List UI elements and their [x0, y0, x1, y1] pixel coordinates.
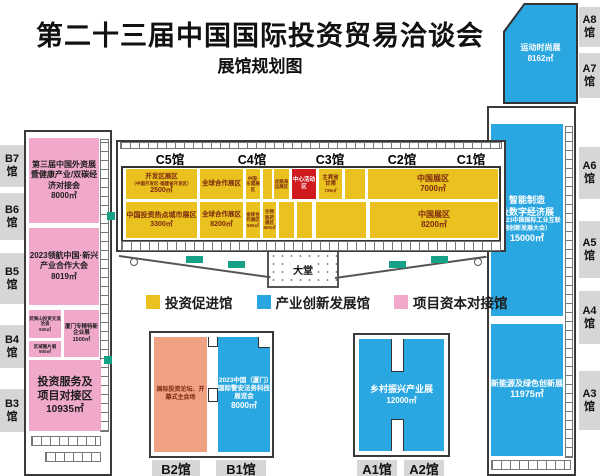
legend-item-invest: 投资促进馆 — [146, 292, 233, 312]
zone-kaifaqu-name: 开发区展区 — [145, 173, 178, 181]
zone-small-booth — [297, 202, 312, 238]
page-title: 第二十三届中国国际投资贸易洽谈会 — [0, 14, 520, 53]
building-notch — [208, 388, 218, 402]
zone-guest-area: 726㎡ — [324, 188, 336, 193]
zone-service-name1: 投资服务及 — [38, 375, 93, 389]
zone-invest-service: 投资服务及 项目对接区 10935㎡ — [29, 360, 101, 431]
hall-label-a2: A2馆 — [404, 460, 444, 476]
zone-green-energy: 新能源及绿色创新展 11975㎡ — [491, 324, 563, 456]
entrance-marker — [186, 256, 203, 263]
hall-label-a1: A1馆 — [357, 460, 397, 476]
hall-label-a8: A8馆 — [579, 7, 600, 47]
zone-global1-name: 全球合作展区 — [202, 180, 241, 188]
hall-label-b4: B4馆 — [0, 325, 24, 368]
zone-guest-province: 主宾省 甘肃 726㎡ — [319, 169, 342, 199]
zone-bio-area: 500㎡ — [263, 225, 275, 230]
zone-small-booth — [345, 169, 365, 199]
sports-hall-building: 运动时尚展 8162㎡ — [503, 3, 578, 104]
zone-rural-area: 12000㎡ — [386, 396, 416, 406]
zone-pilot-area: 8019㎡ — [51, 272, 77, 282]
entrance-marker — [104, 356, 112, 364]
zone-sme-name: 厦门专精特新企业展 — [64, 324, 99, 337]
hall-label-a5: A5馆 — [579, 221, 600, 278]
legend-label: 产业创新发展馆 — [276, 292, 371, 312]
booth-strip — [491, 460, 571, 470]
building-notch — [258, 337, 270, 348]
booth-strip — [120, 142, 502, 149]
zone-china2-name: 中国展区 — [418, 210, 450, 220]
column-marker — [474, 258, 482, 266]
hall-label-a6: A6馆 — [579, 147, 600, 199]
zone-hotcity: 中国投资热点城市展区 3300㎡ — [126, 202, 197, 238]
entrance-wall-right — [335, 256, 487, 279]
legend-item-capital: 项目资本对接馆 — [394, 292, 508, 312]
zone-center-stage: 中心活动区 — [292, 169, 316, 199]
entrance-marker — [431, 256, 448, 263]
lobby: 大堂 — [267, 252, 339, 288]
zone-smart-area: 15000㎡ — [510, 233, 544, 245]
zone-pilot-name: 2023领航中国·新兴产业合作大会 — [29, 251, 99, 272]
entrance-marker — [389, 261, 406, 268]
column-marker — [130, 258, 138, 266]
zone-smart-name2: 及数字经济展 — [500, 207, 554, 219]
zone-photo-exhibit: 区域图片展 500㎡ — [29, 341, 61, 357]
hall-label-c1: C1馆 — [440, 149, 502, 165]
hall-label-c2: C2馆 — [366, 149, 438, 165]
zone-service-name2: 项目对接区 — [38, 389, 93, 403]
legend-item-industry: 产业创新发展馆 — [257, 292, 371, 312]
legend-swatch-pink — [394, 295, 408, 309]
zone-sports: 运动时尚展 8162㎡ — [505, 5, 576, 102]
zone-kaifaqu-area: 2500㎡ — [150, 186, 173, 195]
zone-china-7000: 中国展区 7000㎡ — [368, 169, 498, 199]
hall-label-b6: B6馆 — [0, 193, 24, 240]
zone-global2-area: 8200㎡ — [210, 220, 233, 229]
zone-forum-name: 国际投资论坛、开幕式主会场 — [154, 387, 207, 402]
lobby-label: 大堂 — [291, 262, 315, 277]
zone-foreign-invest-expo: 第三届中国外资展暨健康产业/双碳经济对接会 8000㎡ — [29, 138, 99, 223]
zone-asean: 中国·东盟展区 — [246, 169, 260, 199]
legend-label: 项目资本对接馆 — [413, 292, 508, 312]
hall-label-b7: B7馆 — [0, 145, 24, 187]
zone-silk-road: 丝路海运展区 — [274, 169, 289, 199]
zone-foreign-invest-name: 第三届中国外资展暨健康产业/双碳经济对接会 — [29, 160, 99, 191]
hall-label-b3: B3馆 — [0, 389, 24, 432]
hall-label-b5: B5馆 — [0, 253, 24, 304]
zone-global2-name: 全球合作展区 — [202, 211, 241, 219]
zone-stage-name: 中心活动区 — [292, 177, 316, 190]
legend-swatch-blue — [257, 295, 271, 309]
zone-china1-area: 7000㎡ — [420, 184, 446, 194]
zone-global-coop-2: 全球合作展区 8200㎡ — [200, 202, 243, 238]
hall-label-c3: C3馆 — [292, 149, 368, 165]
zone-bio: 生物医药展区 500㎡ — [263, 202, 276, 238]
zone-green-energy-area: 11975㎡ — [510, 389, 544, 401]
zone-legal-tech: 2023中国（厦门）国际警安法务科技展览会 8000㎡ — [218, 337, 270, 452]
booth-strip — [45, 452, 101, 462]
zone-photo-area: 500㎡ — [39, 349, 51, 354]
zone-kaifaqu: 开发区展区 （中国开发区·福建省开发区） 2500㎡ — [126, 169, 197, 199]
legend-label: 投资促进馆 — [165, 292, 233, 312]
zone-legal-area: 8000㎡ — [231, 401, 257, 411]
zone-forum: 国际投资论坛、开幕式主会场 — [154, 337, 207, 452]
zone-foreign-invest-area: 8000㎡ — [51, 191, 77, 201]
zone-bio-name: 生物医药展区 — [263, 209, 276, 225]
zone-china-8200: 中国展区 8200㎡ — [370, 202, 498, 238]
zone-legal-name: 2023中国（厦门）国际警安法务科技展览会 — [218, 377, 270, 401]
zone-green-energy-name: 新能源及绿色创新展 — [491, 379, 563, 389]
exhibition-floor-plan: 第二十三届中国国际投资贸易洽谈会 展馆规划图 运动时尚展 8162㎡ A8馆 A… — [0, 0, 600, 476]
zone-small-booth — [263, 169, 272, 199]
hall-label-a4: A4馆 — [579, 291, 600, 344]
zone-hotcity-name: 中国投资热点城市展区 — [127, 211, 197, 220]
hall-label-b2: B2馆 — [152, 460, 200, 476]
hall-label-c5: C5馆 — [128, 149, 212, 165]
legend: 投资促进馆 产业创新发展馆 项目资本对接馆 — [146, 292, 508, 312]
zone-sme-area: 1500㎡ — [73, 337, 91, 344]
hall-label-b1: B1馆 — [216, 460, 266, 476]
zone-wuyishan-name: 武夷山投资交流洽谈 — [29, 316, 61, 327]
zone-guest-name2: 甘肃 — [325, 181, 336, 188]
zone-small-booth — [316, 202, 366, 238]
page-subtitle: 展馆规划图 — [0, 52, 520, 77]
entrance-marker — [107, 212, 115, 220]
hall-label-a3: A3馆 — [579, 371, 600, 430]
hall-label-c4: C4馆 — [214, 149, 290, 165]
zone-smart-name1: 智能制造 — [509, 195, 545, 207]
building-notch — [208, 337, 218, 347]
hall-label-a7: A7馆 — [579, 53, 600, 98]
zone-sports-area: 8162㎡ — [528, 54, 554, 64]
zone-china1-name: 中国展区 — [417, 174, 449, 184]
zone-service-area: 10935㎡ — [46, 403, 84, 416]
zone-wuyishan-area: 930㎡ — [39, 327, 51, 332]
entrance-marker — [228, 261, 245, 268]
booth-strip — [31, 436, 101, 446]
booth-strip — [565, 126, 573, 458]
booth-strip — [100, 139, 109, 432]
zone-small-booth — [279, 202, 294, 238]
zone-brics-name: 金砖合作展区 — [246, 212, 260, 223]
zone-brics: 金砖合作展区 500㎡ — [246, 202, 260, 238]
zone-silk-name: 丝路海运展区 — [274, 179, 289, 190]
building-notch — [391, 419, 404, 451]
zone-china2-area: 8200㎡ — [421, 220, 447, 230]
building-notch — [391, 339, 404, 372]
zone-pilot-china: 2023领航中国·新兴产业合作大会 8019㎡ — [29, 228, 99, 305]
booth-strip — [121, 241, 501, 251]
zone-hotcity-area: 3300㎡ — [150, 220, 173, 229]
zone-wuyishan: 武夷山投资交流洽谈 930㎡ — [29, 310, 61, 338]
zone-sports-name: 运动时尚展 — [521, 43, 561, 53]
zone-asean-name: 中国·东盟展区 — [246, 176, 260, 192]
zone-rural-name: 乡村振兴产业展 — [370, 384, 433, 396]
zone-brics-area: 500㎡ — [247, 223, 259, 228]
legend-swatch-yellow — [146, 295, 160, 309]
zone-xiamen-sme: 厦门专精特新企业展 1500㎡ — [64, 310, 99, 357]
zone-global-coop-1: 全球合作展区 — [200, 169, 243, 199]
